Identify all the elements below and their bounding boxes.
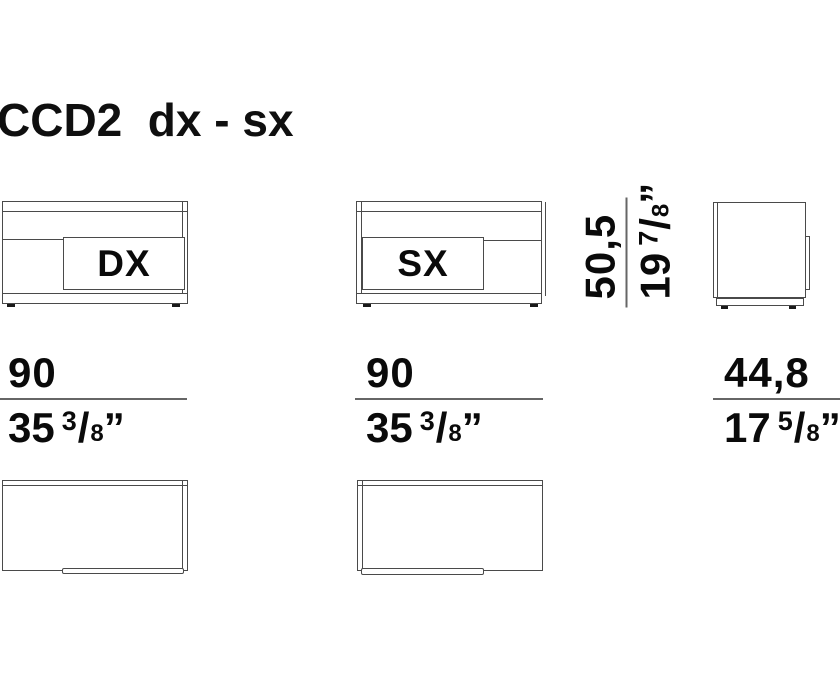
fraction-numerator: 3 <box>420 406 435 436</box>
fraction-slash: / <box>78 404 90 451</box>
front-sx-shelf-line <box>484 240 541 241</box>
fraction-denominator: 8 <box>648 204 675 217</box>
height-dimension-rule <box>626 198 628 308</box>
fraction-numerator: 7 <box>634 231 664 246</box>
depth-metric: 44,8 <box>713 352 840 394</box>
fraction-denominator: 8 <box>90 420 103 447</box>
fraction-slash: / <box>794 404 806 451</box>
height-dimension: 50,5 197/8” <box>580 198 679 308</box>
inch-mark: ” <box>104 404 123 451</box>
imperial-whole: 35 <box>366 404 413 451</box>
plan-dx-top-inner-line <box>3 485 187 486</box>
fraction-numerator: 3 <box>62 406 77 436</box>
plan-dx-door-front-strip <box>62 568 184 574</box>
side-view-plinth <box>716 298 804 306</box>
plan-view-dx-outline <box>2 480 188 571</box>
width-dx-dimension-rule <box>0 398 187 400</box>
depth-dimension-rule <box>713 398 840 400</box>
side-view-foot-left <box>721 306 728 309</box>
side-view-back-panel <box>805 236 810 290</box>
plan-sx-top-inner-line <box>358 485 542 486</box>
drawer-label-sx: SX <box>397 243 448 285</box>
front-dx-foot-right <box>172 304 180 307</box>
height-metric: 50,5 <box>580 198 622 308</box>
width-sx-dimension-rule <box>355 398 543 400</box>
plan-view-sx-outline <box>357 480 543 571</box>
width-dimension-dx: 90 353/8” <box>0 352 187 449</box>
height-imperial: 197/8” <box>635 198 677 308</box>
imperial-whole: 35 <box>8 404 55 451</box>
front-dx-top-edge-line <box>3 211 187 212</box>
side-view-panel-line <box>717 203 718 297</box>
front-sx-foot-right <box>530 304 538 307</box>
front-sx-foot-left <box>363 304 371 307</box>
width-dx-imperial: 353/8” <box>0 407 187 449</box>
fraction-slash: / <box>632 218 679 230</box>
drawer-front-dx: DX <box>63 237 185 290</box>
side-view-outline <box>713 202 806 298</box>
drawer-label-dx: DX <box>97 243 150 285</box>
depth-dimension: 44,8 175/8” <box>713 352 840 449</box>
inch-mark: ” <box>820 404 839 451</box>
front-sx-top-edge-line <box>357 211 541 212</box>
width-sx-imperial: 353/8” <box>355 407 543 449</box>
front-sx-back-panel-line <box>545 202 546 296</box>
width-sx-metric: 90 <box>355 352 543 394</box>
plan-sx-door-front-strip <box>361 568 484 575</box>
width-dimension-sx: 90 353/8” <box>355 352 543 449</box>
fraction-denominator: 8 <box>448 420 461 447</box>
imperial-whole: 17 <box>724 404 771 451</box>
fraction-slash: / <box>436 404 448 451</box>
front-dx-plinth-line <box>3 293 187 294</box>
imperial-whole: 19 <box>632 253 679 300</box>
dimension-sheet: CCD2 dx - sx DX SX 50,5 197/8” 90 <box>0 0 840 679</box>
fraction-denominator: 8 <box>806 420 819 447</box>
fraction-numerator: 5 <box>778 406 793 436</box>
width-dx-metric: 90 <box>0 352 187 394</box>
plan-dx-side-inner-line <box>182 481 183 570</box>
side-view-foot-right <box>789 306 796 309</box>
product-title: CCD2 dx - sx <box>0 97 294 143</box>
front-dx-foot-left <box>7 304 15 307</box>
inch-mark: ” <box>462 404 481 451</box>
inch-mark: ” <box>632 185 679 204</box>
drawer-front-sx: SX <box>362 237 484 290</box>
plan-sx-side-inner-line <box>362 481 363 570</box>
front-sx-plinth-line <box>357 293 541 294</box>
depth-imperial: 175/8” <box>713 407 840 449</box>
front-dx-shelf-line <box>3 239 63 240</box>
